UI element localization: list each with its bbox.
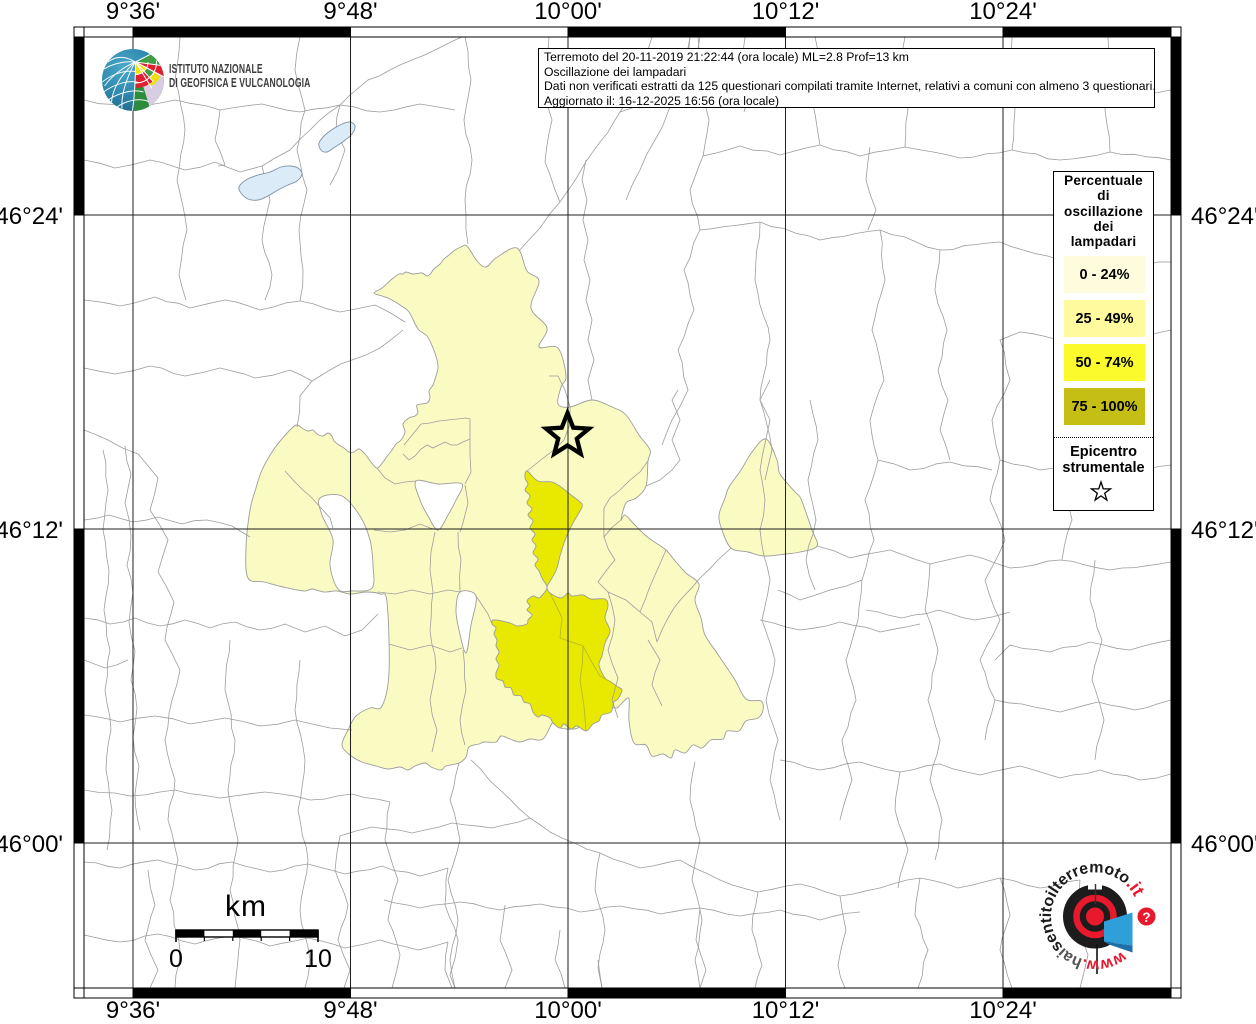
svg-text:10: 10	[304, 945, 332, 973]
svg-text:km: km	[225, 890, 267, 923]
svg-text:?: ?	[1142, 910, 1150, 925]
svg-text:0: 0	[169, 945, 183, 973]
